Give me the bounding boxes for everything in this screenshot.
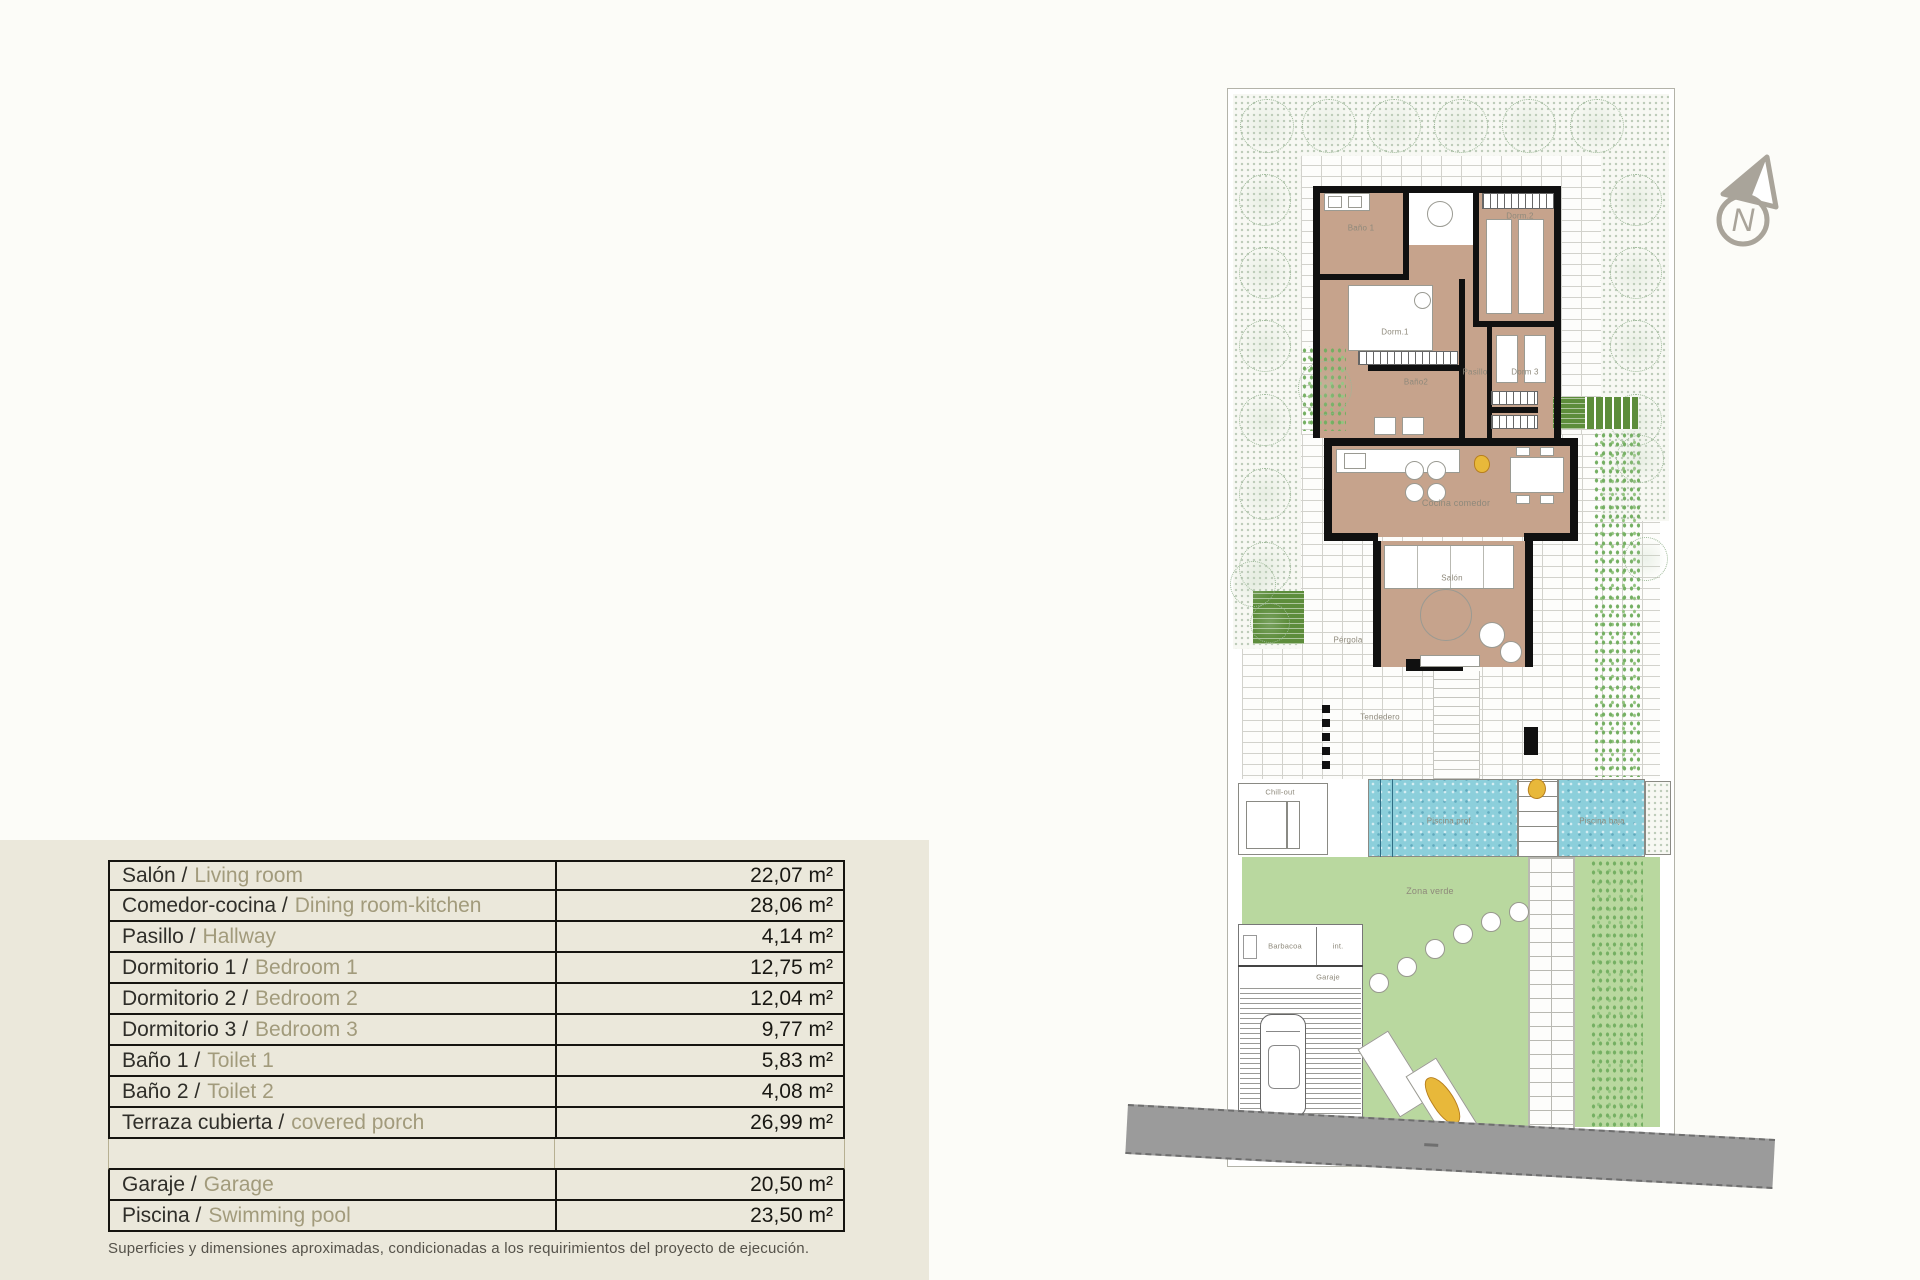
pergola-post xyxy=(1525,541,1533,667)
tree-icon xyxy=(1570,99,1624,153)
room-area: 9,77 m² xyxy=(555,1015,843,1044)
tree-icon xyxy=(1610,247,1662,299)
room-name-es: Dormitorio 1 / xyxy=(122,956,248,980)
stepping-stone xyxy=(1509,902,1529,922)
bed xyxy=(1518,219,1544,314)
clothesline-post xyxy=(1322,761,1330,769)
room-name-es: Piscina / xyxy=(122,1204,201,1228)
room-name-en: Dining room-kitchen xyxy=(295,894,482,918)
wall xyxy=(1313,186,1561,193)
wall xyxy=(1313,186,1320,438)
room-area: 4,14 m² xyxy=(555,922,843,951)
room-name-es: Terraza cubierta / xyxy=(122,1111,284,1135)
stepping-stone xyxy=(1397,957,1417,977)
table-row: Salón /Living room 22,07 m² xyxy=(108,860,845,891)
label-salon: Salón xyxy=(1441,574,1462,583)
north-compass: N xyxy=(1703,138,1795,250)
dining-chair xyxy=(1540,447,1554,456)
label-piscina-baja: Piscina baja xyxy=(1579,817,1625,826)
room-area: 22,07 m² xyxy=(555,862,843,889)
clothesline-post xyxy=(1322,733,1330,741)
bath2-sink xyxy=(1374,417,1396,435)
compass-letter: N xyxy=(1731,202,1755,238)
table-row: Garaje /Garage 20,50 m² xyxy=(108,1170,845,1201)
wall xyxy=(1324,438,1332,541)
tree-icon xyxy=(1302,99,1356,153)
coffee-table xyxy=(1420,655,1480,667)
sink-icon xyxy=(1328,196,1342,208)
wall xyxy=(1403,186,1409,279)
table-row: Terraza cubierta /covered porch 26,99 m² xyxy=(108,1108,845,1139)
wardrobe xyxy=(1491,415,1538,429)
label-dorm1: Dorm.1 xyxy=(1381,328,1408,337)
room-name-en: Bedroom 3 xyxy=(255,1018,358,1042)
tree-icon xyxy=(1610,320,1662,372)
tree-icon xyxy=(1240,99,1294,153)
table-row: Comedor-cocina /Dining room-kitchen 28,0… xyxy=(108,891,845,922)
wardrobe xyxy=(1358,351,1458,365)
label-pasillo: Pasillo xyxy=(1463,368,1488,377)
stepping-stone xyxy=(1425,939,1445,959)
pool-planter xyxy=(1645,781,1671,855)
pool-lane-line xyxy=(1392,779,1393,857)
room-area: 20,50 m² xyxy=(555,1170,843,1199)
room-name-es: Salón / xyxy=(122,864,187,888)
room-name-es: Comedor-cocina / xyxy=(122,894,288,918)
car-roof xyxy=(1268,1045,1300,1089)
clothesline-post xyxy=(1322,747,1330,755)
room-name-es: Dormitorio 2 / xyxy=(122,987,248,1011)
room-name-es: Baño 2 / xyxy=(122,1080,200,1104)
room-name-es: Garaje / xyxy=(122,1173,197,1197)
room-area: 23,50 m² xyxy=(555,1201,843,1230)
label-chillout: Chill-out xyxy=(1265,788,1294,797)
dining-chair xyxy=(1516,495,1530,504)
plant-pot-icon xyxy=(1474,455,1490,473)
car-windshield xyxy=(1266,1031,1300,1032)
pillow xyxy=(1414,292,1431,309)
pouf xyxy=(1500,641,1522,663)
cafe-table xyxy=(1427,461,1446,480)
label-instalaciones: int. xyxy=(1333,942,1344,951)
tree-icon xyxy=(1610,174,1662,226)
wall xyxy=(1313,274,1409,280)
toilet-icon xyxy=(1402,417,1424,435)
table-row: Baño 1 /Toilet 1 5,83 m² xyxy=(108,1046,845,1077)
tree-icon xyxy=(1502,99,1556,153)
wardrobe xyxy=(1482,193,1554,209)
barbecue-icon xyxy=(1243,935,1257,959)
table-spacer-row xyxy=(108,1139,845,1170)
post xyxy=(1524,727,1538,755)
site-plan: Baño 1 Dorm.2 Dorm.1 Baño2 Pasillo Dorm … xyxy=(1227,88,1675,1167)
chillout-sofa xyxy=(1246,801,1288,849)
room-divider xyxy=(1316,927,1317,965)
label-dorm3: Dorm 3 xyxy=(1511,368,1538,377)
disclaimer-text: Superficies y dimensiones aproximadas, c… xyxy=(108,1240,809,1257)
room-name-es: Baño 1 / xyxy=(122,1049,200,1073)
bush-icon xyxy=(1250,603,1290,643)
room-name-en: covered porch xyxy=(291,1111,424,1135)
bed xyxy=(1486,219,1512,314)
dining-chair xyxy=(1540,495,1554,504)
planter-strip-right xyxy=(1585,397,1638,429)
room-area: 26,99 m² xyxy=(555,1108,843,1137)
label-tendedero: Tendedero xyxy=(1360,713,1400,722)
label-piscina-prof: Piscina prof. xyxy=(1427,817,1474,826)
wall xyxy=(1324,533,1378,541)
table-row: Dormitorio 3 /Bedroom 3 9,77 m² xyxy=(108,1015,845,1046)
room-area: 5,83 m² xyxy=(555,1046,843,1075)
room-name-en: Living room xyxy=(194,864,303,888)
wall xyxy=(1524,533,1578,541)
car xyxy=(1260,1014,1306,1116)
tree-icon xyxy=(1239,468,1291,520)
bush-icon xyxy=(1230,561,1276,607)
table-row: Piscina /Swimming pool 23,50 m² xyxy=(108,1201,845,1232)
room-area: 28,06 m² xyxy=(555,891,843,920)
tree-icon xyxy=(1239,247,1291,299)
room-area: 4,08 m² xyxy=(555,1077,843,1106)
room-name-en: Toilet 2 xyxy=(207,1080,274,1104)
areas-panel: Salón /Living room 22,07 m² Comedor-coci… xyxy=(0,840,929,1280)
room-area: 12,75 m² xyxy=(555,953,843,982)
wall xyxy=(1554,186,1561,438)
hedge-right-upper xyxy=(1593,431,1640,777)
label-garaje: Garaje xyxy=(1316,973,1340,982)
dining-table xyxy=(1510,457,1564,493)
tree-icon xyxy=(1367,99,1421,153)
label-barbacoa: Barbacoa xyxy=(1268,942,1302,951)
bush-icon xyxy=(1616,435,1664,483)
wall xyxy=(1324,438,1578,446)
room-area: 12,04 m² xyxy=(555,984,843,1013)
bush-icon xyxy=(1298,361,1352,415)
wall xyxy=(1570,438,1578,541)
table-row: Dormitorio 1 /Bedroom 1 12,75 m² xyxy=(108,953,845,984)
pergola-post xyxy=(1373,541,1381,667)
clothesline-post xyxy=(1322,705,1330,713)
document-page: Salón /Living room 22,07 m² Comedor-coci… xyxy=(0,0,1920,1280)
pool-lane-line xyxy=(1380,779,1381,857)
clothesline-post xyxy=(1322,719,1330,727)
room-name-en: Bedroom 1 xyxy=(255,956,358,980)
room-name-en: Hallway xyxy=(203,925,277,949)
label-bano1: Baño 1 xyxy=(1348,224,1375,233)
rug xyxy=(1420,589,1472,641)
tree-icon xyxy=(1239,394,1291,446)
tree-icon xyxy=(1434,99,1488,153)
ceiling-light-icon xyxy=(1427,201,1453,227)
stepping-stone xyxy=(1369,973,1389,993)
stepping-stone xyxy=(1453,924,1473,944)
wall xyxy=(1491,407,1538,413)
label-bano2: Baño2 xyxy=(1404,378,1428,387)
wall xyxy=(1368,365,1465,371)
pouf xyxy=(1479,622,1505,648)
dining-chair xyxy=(1516,447,1530,456)
tree-icon xyxy=(1239,320,1291,372)
areas-table: Salón /Living room 22,07 m² Comedor-coci… xyxy=(108,860,845,1232)
label-zona-verde: Zona verde xyxy=(1406,886,1454,896)
sink-icon xyxy=(1348,196,1362,208)
room-name-en: Toilet 1 xyxy=(207,1049,274,1073)
tree-icon xyxy=(1239,174,1291,226)
walkway xyxy=(1433,671,1480,779)
table-row: Baño 2 /Toilet 2 4,08 m² xyxy=(108,1077,845,1108)
road-marking xyxy=(1424,1143,1438,1147)
chillout-sofa-arm xyxy=(1286,801,1300,849)
table-row: Dormitorio 2 /Bedroom 2 12,04 m² xyxy=(108,984,845,1015)
cafe-table xyxy=(1405,461,1424,480)
label-cocina-comedor: Cocina comedor xyxy=(1422,498,1490,508)
room-name-en: Garage xyxy=(204,1173,274,1197)
room-name-es: Pasillo / xyxy=(122,925,196,949)
wall xyxy=(1473,186,1479,327)
room-name-en: Swimming pool xyxy=(208,1204,350,1228)
label-pergola: Pérgola xyxy=(1334,636,1363,645)
label-dorm2: Dorm.2 xyxy=(1506,212,1533,221)
hedge-right-lower xyxy=(1590,859,1643,1127)
table-row: Pasillo /Hallway 4,14 m² xyxy=(108,922,845,953)
wall xyxy=(1459,279,1465,438)
cooktop-icon xyxy=(1344,453,1366,469)
room-name-es: Dormitorio 3 / xyxy=(122,1018,248,1042)
stepping-stone xyxy=(1481,912,1501,932)
room-name-en: Bedroom 2 xyxy=(255,987,358,1011)
wardrobe xyxy=(1491,391,1538,405)
garden-path xyxy=(1528,857,1575,1129)
bush-icon xyxy=(1624,537,1668,581)
